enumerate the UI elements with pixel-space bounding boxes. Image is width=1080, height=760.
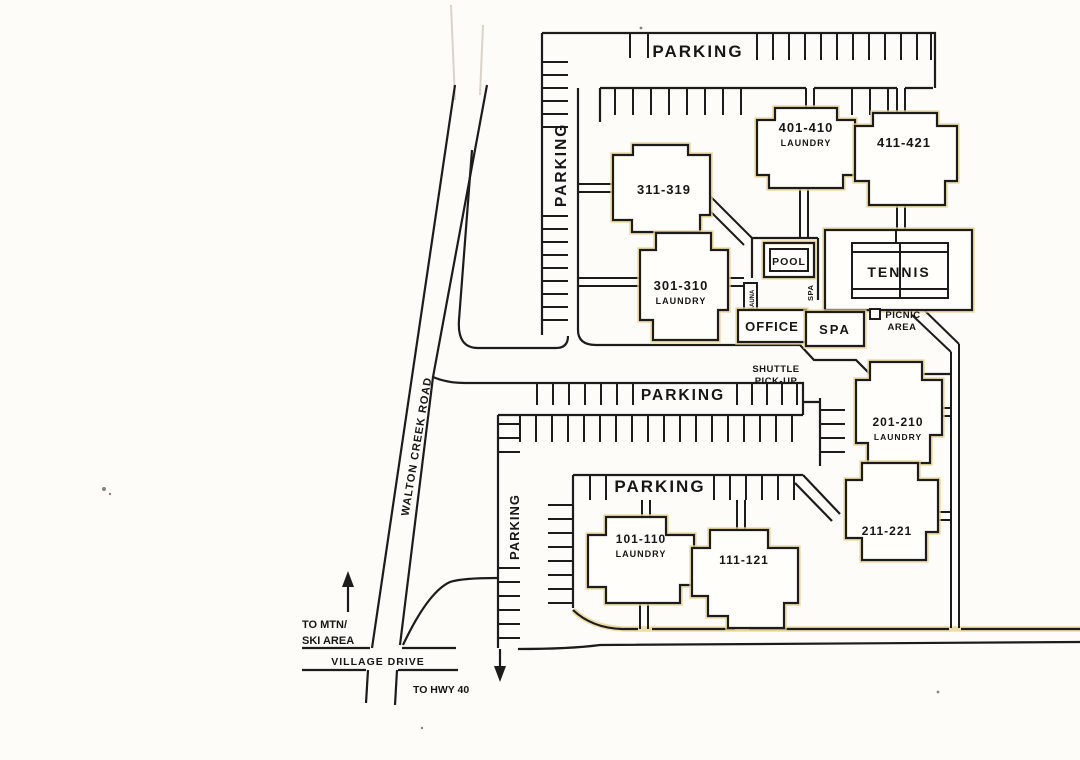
spa-label: SPA	[819, 322, 851, 337]
office-label: OFFICE	[745, 319, 799, 334]
building-101-110: 101-110 LAUNDRY	[588, 517, 694, 603]
scanned-site-map-page: PARKING PARKING PARKING PARKING PARKING	[0, 0, 1080, 760]
site-map-svg: PARKING PARKING PARKING PARKING PARKING	[0, 0, 1080, 760]
building-411-421: 411-421	[855, 113, 957, 205]
pool-label: POOL	[772, 256, 806, 268]
parking-ticks-middle-lower	[520, 415, 792, 442]
building-201-210: 201-210 LAUNDRY	[856, 362, 942, 463]
building-301-310-laundry: LAUNDRY	[656, 296, 707, 306]
building-411-421-label: 411-421	[877, 135, 931, 150]
village-drive-label: VILLAGE DRIVE	[331, 656, 425, 668]
picnic-area: PICNIC AREA	[870, 309, 921, 333]
tennis-court: TENNIS	[825, 230, 972, 310]
spa: SPA	[806, 312, 864, 346]
parking-ticks-bottom-left-b	[548, 505, 573, 603]
parking-lot-lower: PARKING PARKING	[498, 415, 840, 648]
building-111-121-label: 111-121	[719, 553, 769, 567]
building-401-410: 401-410 LAUNDRY	[757, 108, 855, 188]
building-211-221-label: 211-221	[862, 524, 912, 538]
building-101-110-label: 101-110	[616, 532, 666, 546]
parking-label-middle: PARKING	[641, 387, 725, 404]
shuttle-pickup-label-1: SHUTTLE	[752, 364, 799, 375]
parking-label-bottom-left: PARKING	[507, 494, 522, 560]
walton-creek-road-label: WALTON CREEK ROAD	[400, 376, 435, 517]
to-mtn-ski-label-1: TO MTN/	[302, 619, 347, 631]
building-311-319-label: 311-319	[637, 182, 691, 197]
spa-walk-label: SPA	[806, 285, 815, 301]
bottom-access-road	[573, 610, 1080, 629]
parking-label-left: PARKING	[553, 123, 570, 207]
shuttle-pickup-label-2: PICK-UP	[755, 376, 798, 387]
picnic-area-label-1: PICNIC	[885, 310, 920, 321]
building-401-410-laundry: LAUNDRY	[781, 138, 832, 148]
office: OFFICE	[738, 310, 806, 342]
north-arrow-to-ski	[342, 571, 354, 612]
parking-label-lower: PARKING	[614, 477, 705, 496]
tennis-label: TENNIS	[867, 264, 930, 280]
building-111-121: 111-121	[692, 530, 798, 628]
building-101-110-laundry: LAUNDRY	[616, 549, 667, 559]
building-401-410-label: 401-410	[779, 120, 834, 135]
to-hwy-40-label: TO HWY 40	[413, 684, 469, 696]
shuttle-pickup: SHUTTLE PICK-UP	[752, 364, 799, 387]
building-301-310: 301-310 LAUNDRY	[640, 233, 728, 340]
parking-ticks-inner-row	[615, 88, 888, 115]
amenity-core: POOL TENNIS SAUNA SPA OFFICE SPA PICNIC …	[738, 230, 972, 387]
parking-label-top: PARKING	[652, 42, 743, 61]
picnic-area-label-2: AREA	[888, 322, 917, 333]
building-211-221: 211-221	[846, 463, 938, 560]
building-201-210-laundry: LAUNDRY	[874, 432, 922, 442]
building-311-319: 311-319	[613, 145, 710, 232]
to-mtn-ski-label-2: SKI AREA	[302, 635, 354, 647]
south-entry-drive	[403, 578, 497, 645]
pool: POOL	[764, 243, 814, 277]
parking-lot-middle: PARKING	[433, 377, 845, 466]
south-arrow-to-hwy	[494, 649, 506, 682]
building-301-310-label: 301-310	[654, 278, 709, 293]
building-201-210-label: 201-210	[872, 415, 923, 429]
